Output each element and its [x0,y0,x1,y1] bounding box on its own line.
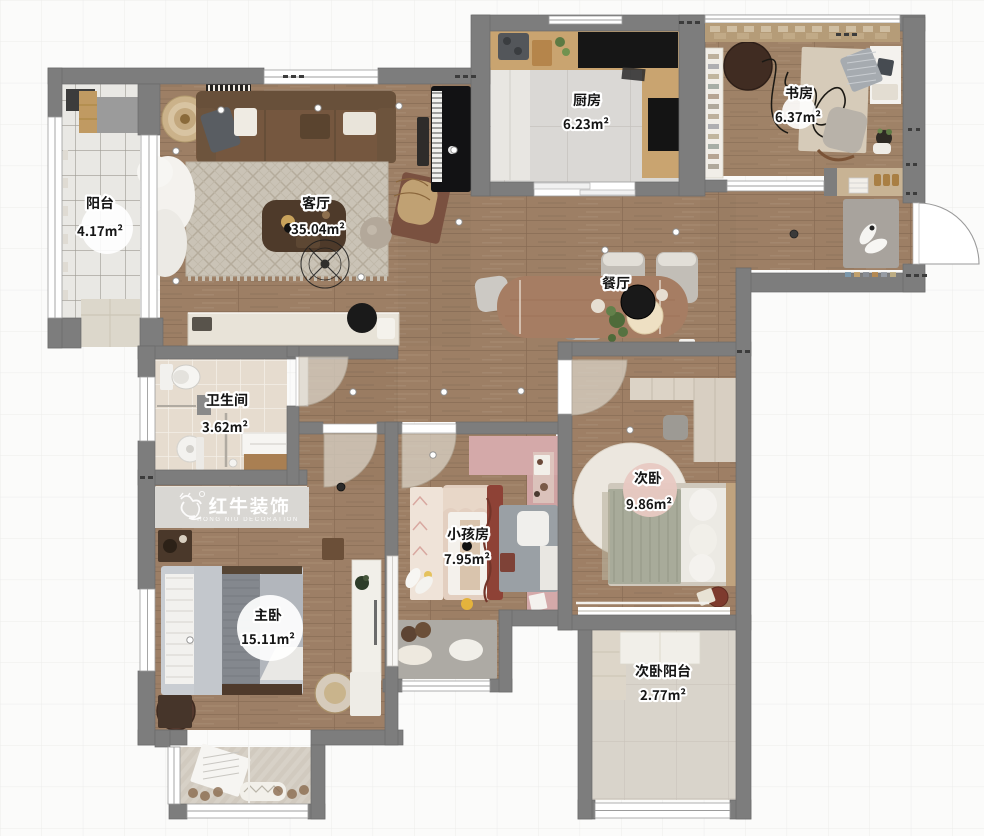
svg-text:HONG NIU DECORATION: HONG NIU DECORATION [197,517,299,523]
